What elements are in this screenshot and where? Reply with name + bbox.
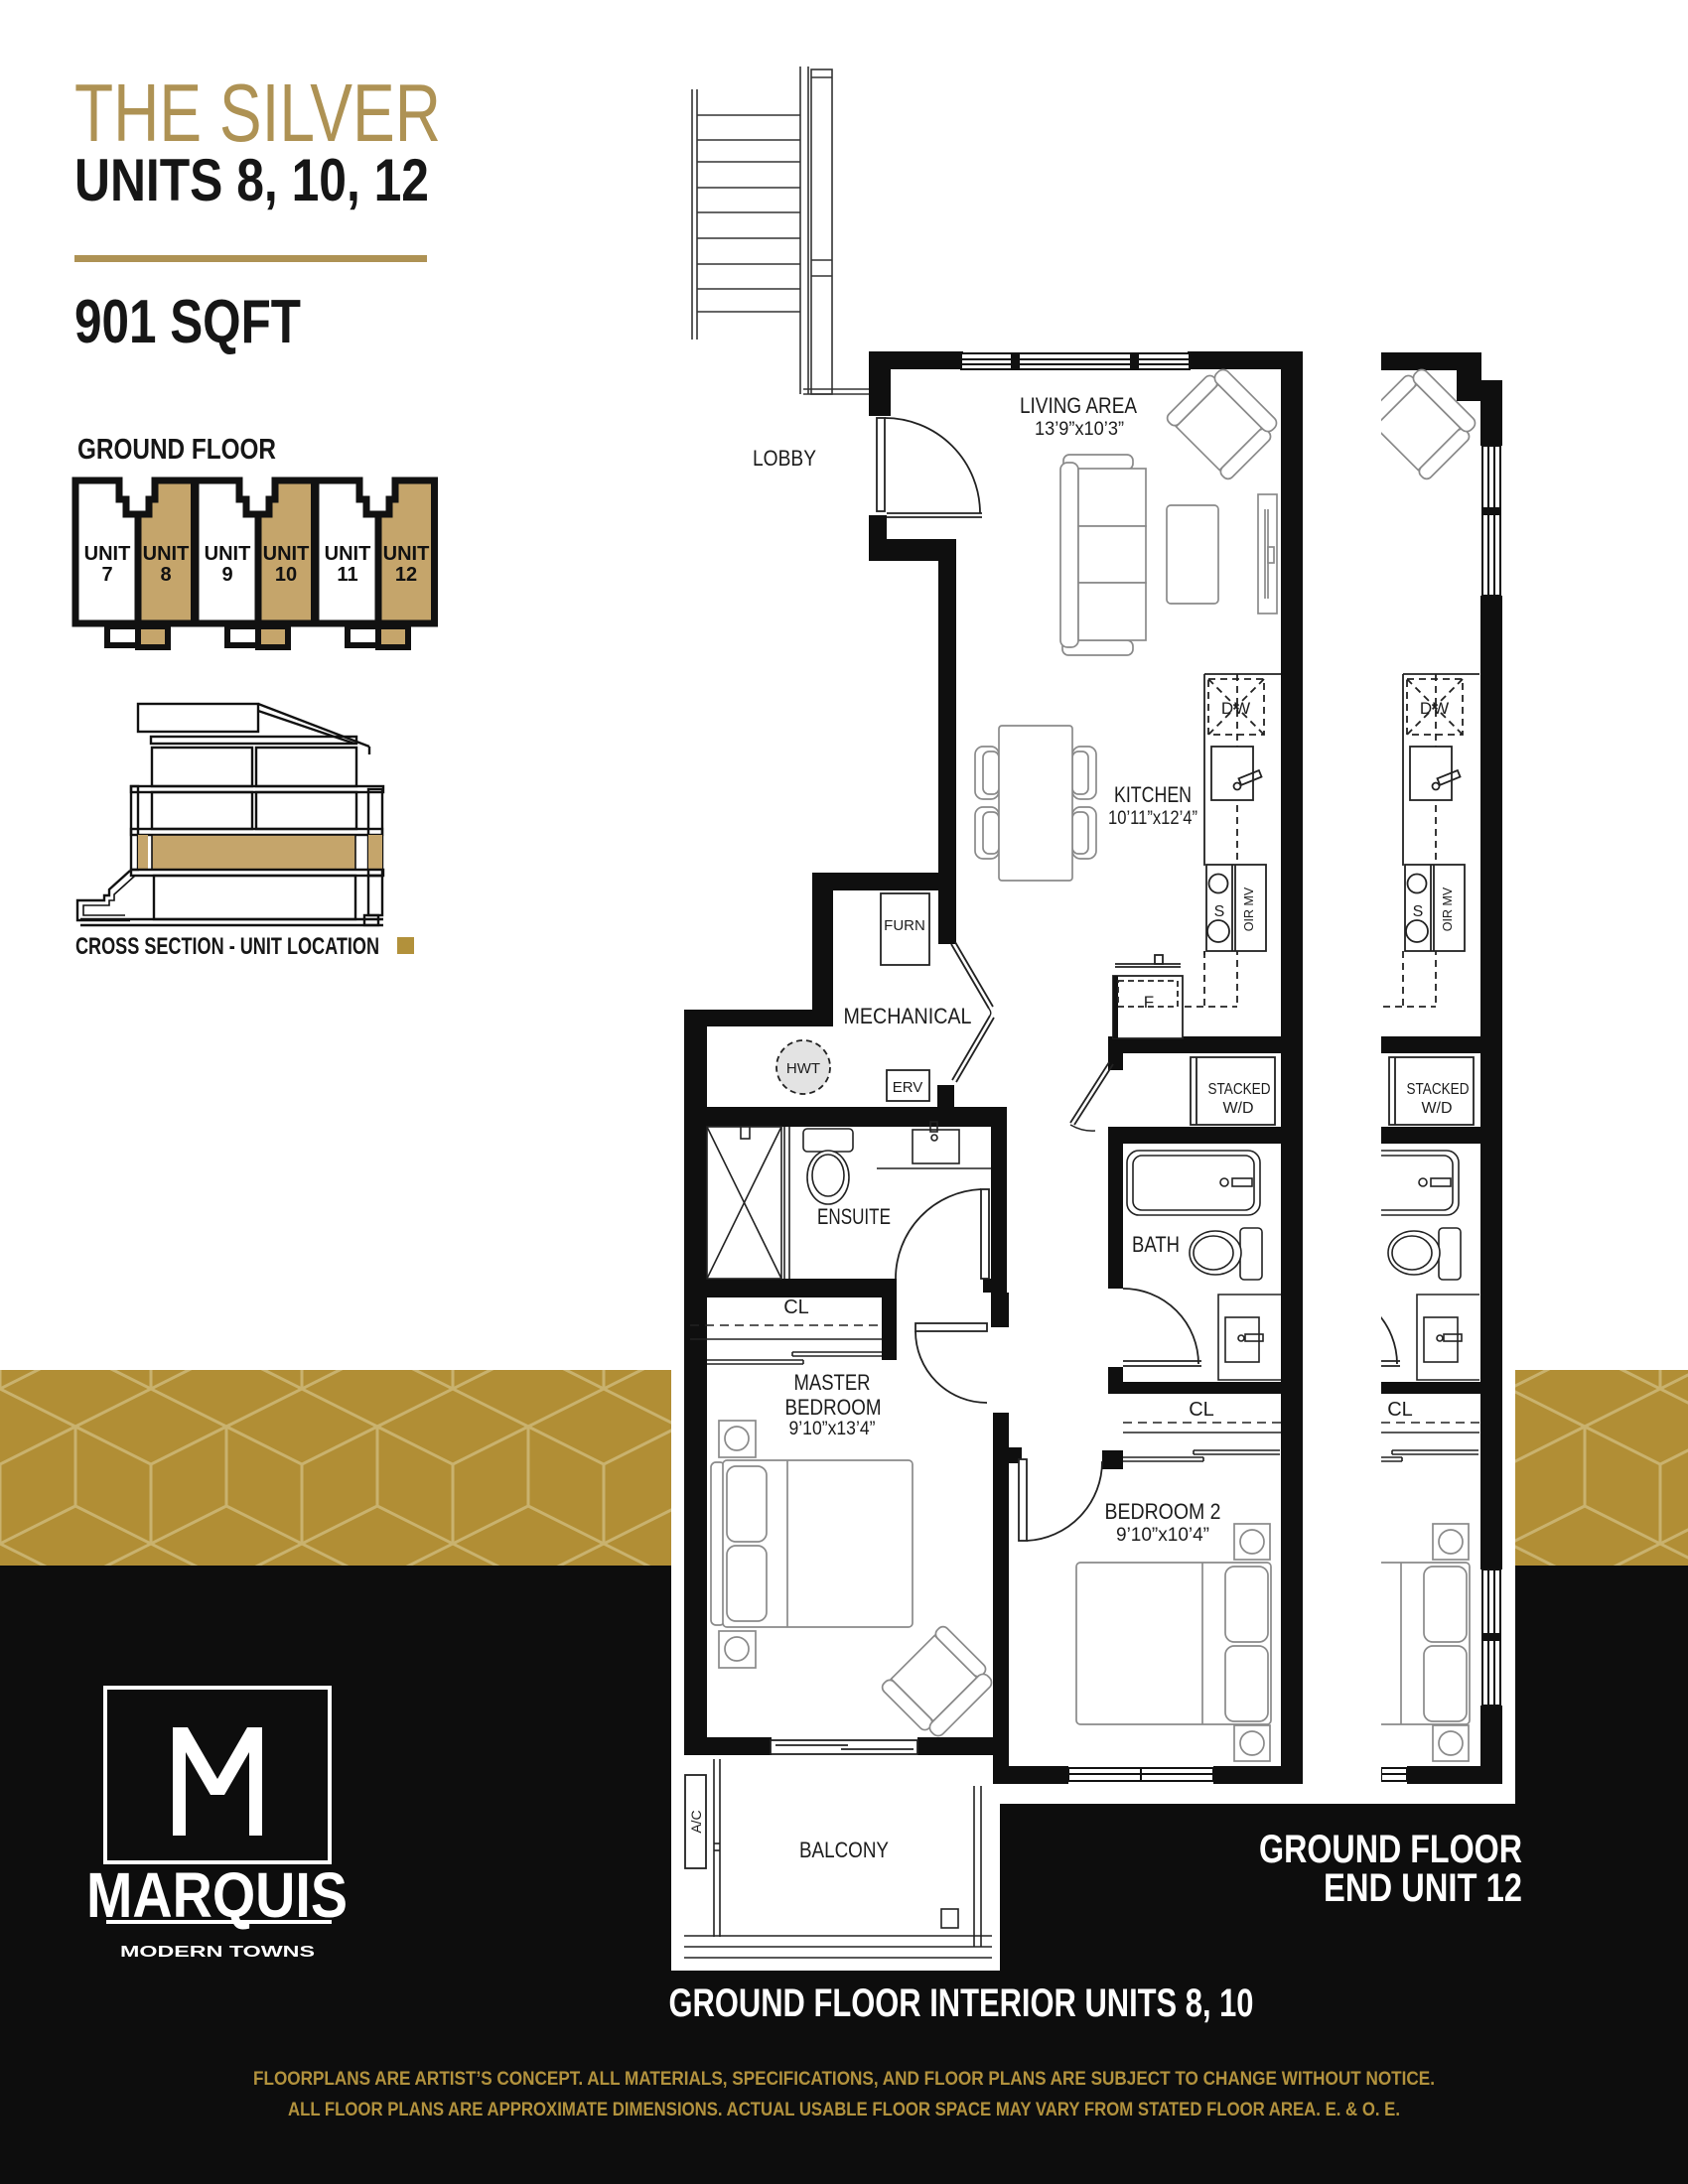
svg-text:S: S (1214, 903, 1225, 920)
svg-text:9’10”x10’4”: 9’10”x10’4” (1116, 1525, 1209, 1546)
svg-text:STACKED: STACKED (1407, 1081, 1470, 1098)
svg-text:DW: DW (1420, 699, 1450, 718)
svg-text:BEDROOM: BEDROOM (785, 1395, 882, 1420)
svg-text:HWT: HWT (786, 1060, 820, 1077)
svg-text:GROUND FLOOR: GROUND FLOOR (77, 434, 276, 466)
svg-text:A/C: A/C (688, 1810, 704, 1833)
svg-text:MECHANICAL: MECHANICAL (844, 1004, 972, 1028)
svg-text:LOBBY: LOBBY (753, 446, 816, 471)
svg-text:11: 11 (337, 564, 357, 586)
svg-text:UNIT: UNIT (84, 543, 131, 565)
svg-text:FURN: FURN (884, 917, 925, 934)
svg-text:OIR MV: OIR MV (1242, 887, 1256, 931)
svg-text:S: S (1413, 903, 1424, 920)
svg-text:UNIT: UNIT (143, 543, 190, 565)
svg-text:CL: CL (783, 1297, 809, 1318)
svg-text:ENSUITE: ENSUITE (817, 1204, 891, 1229)
svg-text:9’10”x13’4”: 9’10”x13’4” (789, 1419, 876, 1439)
svg-text:GROUND FLOOR INTERIOR UNITS 8,: GROUND FLOOR INTERIOR UNITS 8, 10 (669, 1981, 1254, 2025)
svg-text:CL: CL (1189, 1399, 1214, 1421)
svg-text:LIVING AREA: LIVING AREA (1020, 393, 1137, 418)
svg-text:DW: DW (1221, 699, 1251, 718)
svg-text:KITCHEN: KITCHEN (1114, 782, 1192, 807)
svg-text:UNIT: UNIT (383, 543, 430, 565)
svg-text:FLOORPLANS ARE ARTIST’S CONCEP: FLOORPLANS ARE ARTIST’S CONCEPT. ALL MAT… (253, 2068, 1435, 2090)
svg-text:END UNIT 12: END UNIT 12 (1324, 1866, 1522, 1910)
svg-text:BATH: BATH (1132, 1232, 1180, 1257)
svg-text:UNIT: UNIT (325, 543, 371, 565)
svg-text:901 SQFT: 901 SQFT (74, 288, 301, 356)
svg-text:GROUND FLOOR: GROUND FLOOR (1259, 1828, 1522, 1871)
svg-text:UNIT: UNIT (263, 543, 310, 565)
svg-text:13’9”x10’3”: 13’9”x10’3” (1035, 419, 1124, 440)
svg-text:10’11”x12’4”: 10’11”x12’4” (1108, 808, 1197, 829)
svg-text:MODERN TOWNS: MODERN TOWNS (120, 1944, 315, 1961)
svg-text:BALCONY: BALCONY (799, 1838, 889, 1862)
svg-text:ERV: ERV (893, 1079, 923, 1096)
svg-text:10: 10 (275, 564, 297, 586)
svg-text:CROSS SECTION - UNIT LOCATION: CROSS SECTION - UNIT LOCATION (75, 933, 379, 960)
svg-text:F: F (1144, 993, 1154, 1012)
svg-text:7: 7 (101, 564, 112, 586)
svg-text:MASTER: MASTER (794, 1370, 871, 1395)
svg-text:UNITS 8, 10, 12: UNITS 8, 10, 12 (74, 147, 429, 213)
svg-text:9: 9 (221, 564, 232, 586)
svg-text:STACKED: STACKED (1208, 1081, 1271, 1098)
svg-text:8: 8 (160, 564, 171, 586)
svg-text:OIR MV: OIR MV (1441, 887, 1455, 931)
svg-text:W/D: W/D (1222, 1100, 1253, 1117)
svg-text:UNIT: UNIT (205, 543, 251, 565)
svg-text:ALL FLOOR PLANS ARE APPROXIMAT: ALL FLOOR PLANS ARE APPROXIMATE DIMENSIO… (288, 2099, 1400, 2120)
svg-text:W/D: W/D (1421, 1100, 1452, 1117)
svg-text:12: 12 (395, 564, 417, 586)
svg-text:BEDROOM 2: BEDROOM 2 (1105, 1499, 1221, 1524)
svg-text:CL: CL (1387, 1399, 1413, 1421)
svg-text:THE SILVER: THE SILVER (74, 67, 441, 159)
